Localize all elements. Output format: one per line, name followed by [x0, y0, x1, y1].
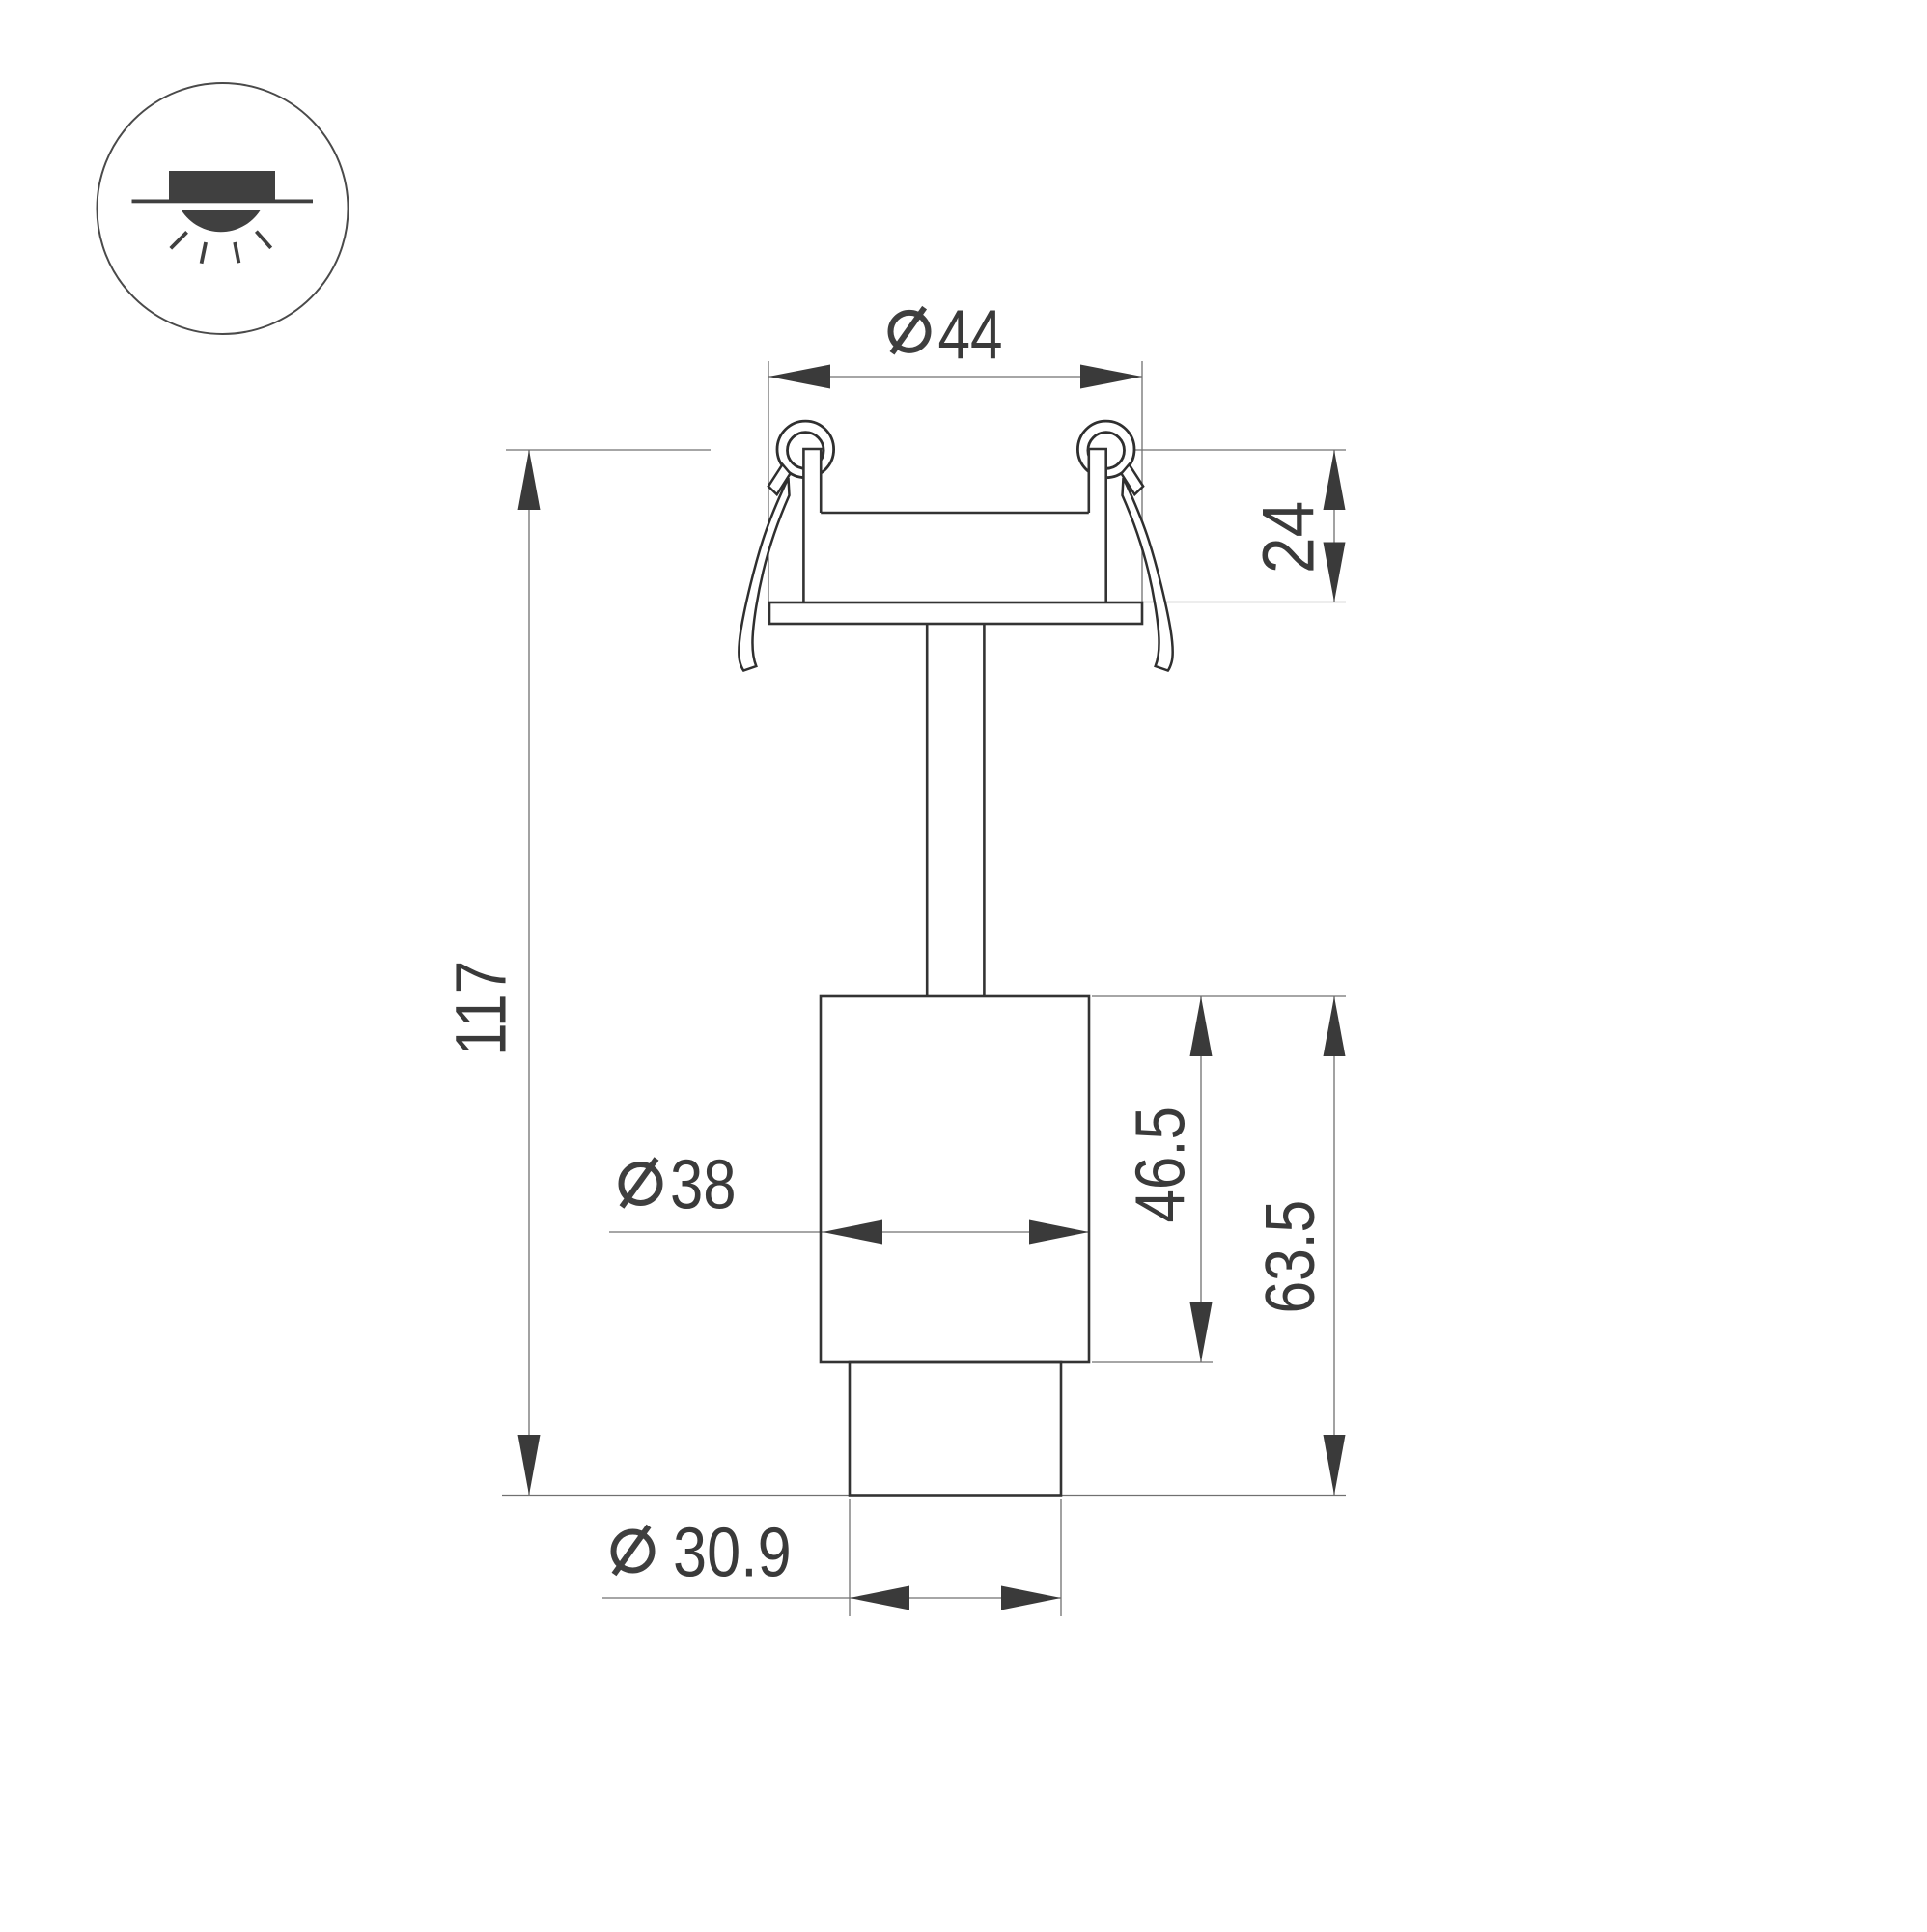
svg-text:63.5: 63.5	[1252, 1200, 1329, 1314]
svg-text:24: 24	[1248, 501, 1330, 574]
svg-text:30.9: 30.9	[673, 1513, 792, 1591]
svg-text:38: 38	[670, 1146, 737, 1224]
svg-text:117: 117	[441, 961, 520, 1056]
svg-text:44: 44	[938, 296, 1003, 375]
svg-text:46.5: 46.5	[1122, 1106, 1199, 1222]
